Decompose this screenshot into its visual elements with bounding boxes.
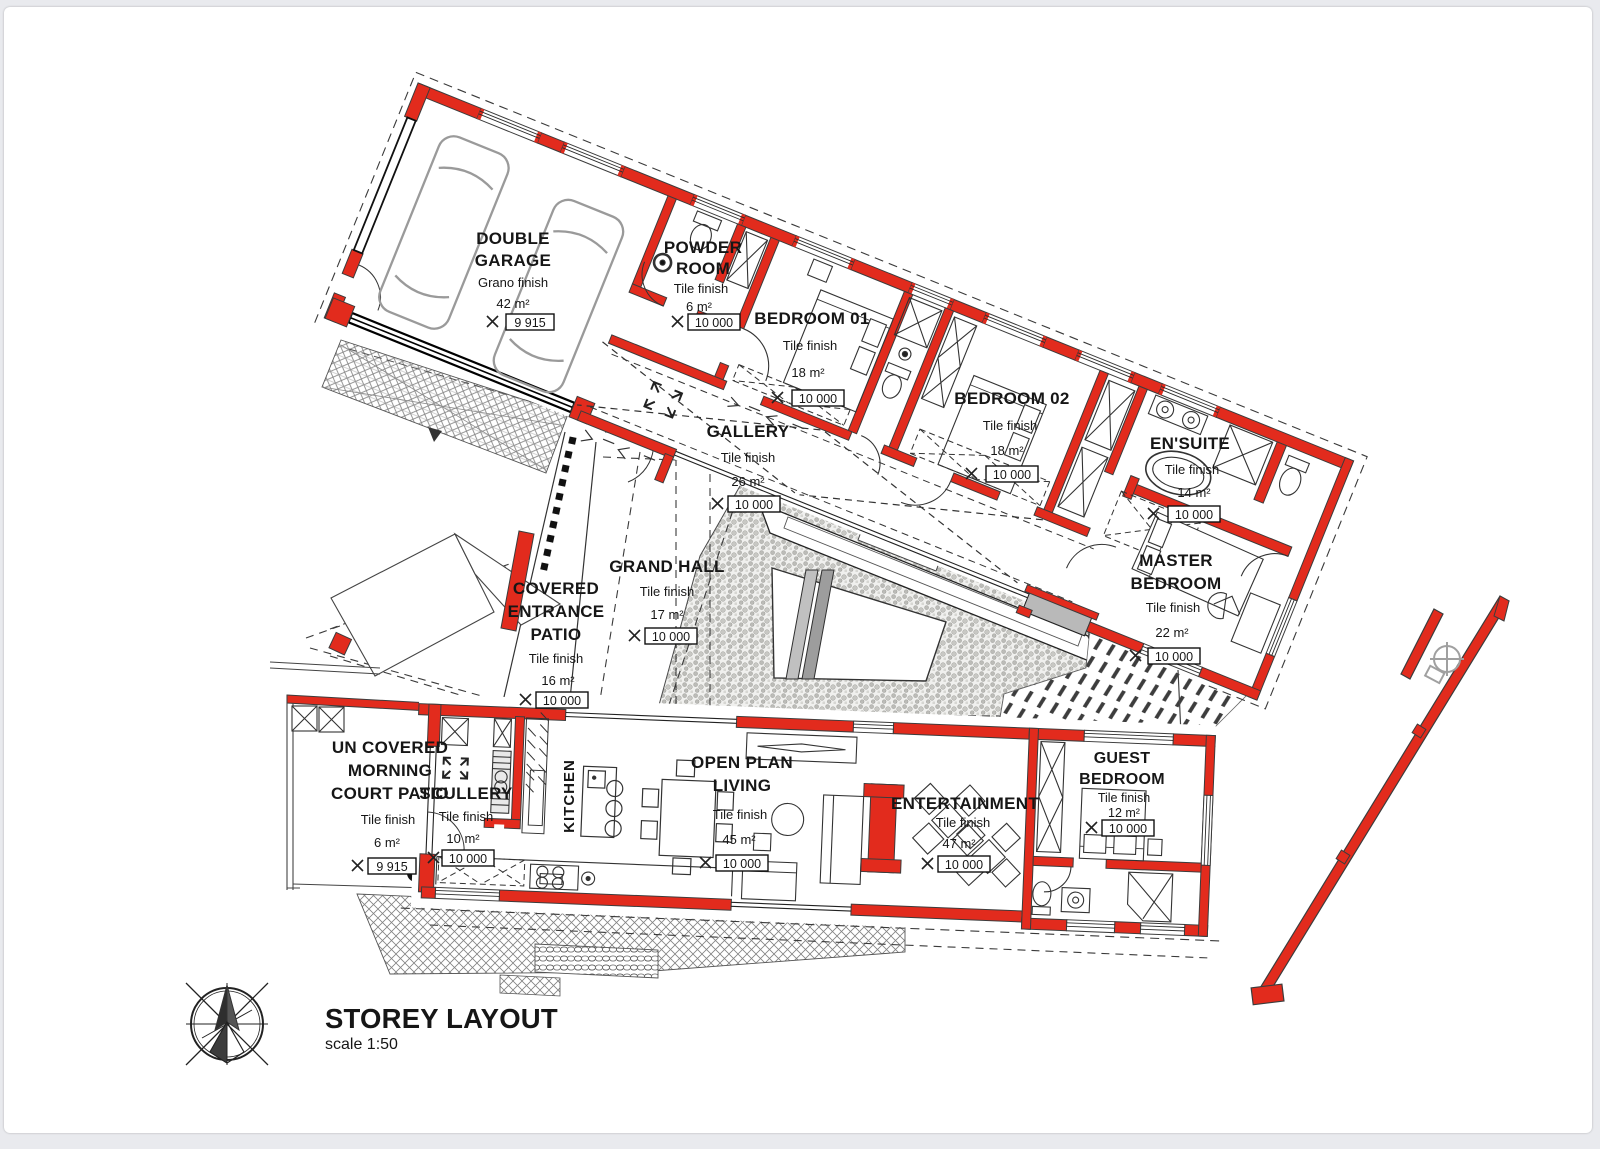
- svg-text:6 m²: 6 m²: [686, 299, 713, 314]
- svg-text:10 000: 10 000: [449, 852, 487, 866]
- svg-text:10 000: 10 000: [1109, 822, 1147, 836]
- svg-text:18 m²: 18 m²: [990, 443, 1024, 458]
- svg-text:47 m²: 47 m²: [942, 836, 976, 851]
- svg-text:18 m²: 18 m²: [791, 365, 825, 380]
- svg-text:BEDROOM 02: BEDROOM 02: [954, 389, 1069, 408]
- svg-text:Tile finish: Tile finish: [640, 584, 694, 599]
- svg-text:45 m²: 45 m²: [722, 832, 756, 847]
- svg-text:Tile finish: Tile finish: [361, 812, 415, 827]
- svg-text:EN'SUITE: EN'SUITE: [1150, 434, 1230, 453]
- svg-text:Tile finish: Tile finish: [1165, 462, 1219, 477]
- svg-text:10 000: 10 000: [993, 468, 1031, 482]
- svg-text:BEDROOM: BEDROOM: [1079, 771, 1165, 788]
- svg-text:GRAND HALL: GRAND HALL: [609, 557, 724, 576]
- svg-text:UN COVERED: UN COVERED: [332, 738, 448, 757]
- svg-text:COVERED: COVERED: [513, 579, 599, 598]
- svg-text:Tile finish: Tile finish: [983, 418, 1037, 433]
- svg-text:DOUBLE: DOUBLE: [476, 229, 550, 248]
- svg-text:16 m²: 16 m²: [541, 673, 575, 688]
- svg-text:BEDROOM 01: BEDROOM 01: [754, 309, 869, 328]
- svg-text:9 915: 9 915: [376, 860, 407, 874]
- svg-text:Tile finish: Tile finish: [1146, 600, 1200, 615]
- svg-text:Tile finish: Tile finish: [936, 815, 990, 830]
- svg-text:Tile finish: Tile finish: [783, 338, 837, 353]
- svg-text:12 m²: 12 m²: [1108, 806, 1140, 820]
- svg-text:17 m²: 17 m²: [650, 607, 684, 622]
- svg-text:6 m²: 6 m²: [374, 835, 401, 850]
- svg-text:POWDER: POWDER: [664, 238, 742, 257]
- svg-text:Tile finish: Tile finish: [1098, 791, 1150, 805]
- svg-text:10 000: 10 000: [723, 857, 761, 871]
- svg-text:14 m²: 14 m²: [1177, 485, 1211, 500]
- svg-text:ENTERTAINMENT: ENTERTAINMENT: [891, 794, 1039, 813]
- svg-text:SCULLERY: SCULLERY: [419, 784, 513, 803]
- svg-text:OPEN PLAN: OPEN PLAN: [691, 753, 793, 772]
- svg-text:10 000: 10 000: [735, 498, 773, 512]
- svg-text:Grano finish: Grano finish: [478, 275, 548, 290]
- svg-text:22 m²: 22 m²: [1155, 625, 1189, 640]
- svg-text:10 000: 10 000: [543, 694, 581, 708]
- svg-text:42 m²: 42 m²: [496, 296, 530, 311]
- svg-text:10 000: 10 000: [799, 392, 837, 406]
- svg-text:GUEST: GUEST: [1094, 750, 1151, 767]
- svg-text:PATIO: PATIO: [531, 625, 582, 644]
- svg-text:ROOM: ROOM: [676, 259, 730, 278]
- svg-text:GARAGE: GARAGE: [475, 251, 551, 270]
- svg-text:10 000: 10 000: [695, 316, 733, 330]
- svg-text:BEDROOM: BEDROOM: [1131, 574, 1222, 593]
- svg-text:9 915: 9 915: [514, 316, 545, 330]
- svg-text:26 m²: 26 m²: [731, 474, 765, 489]
- svg-text:10 000: 10 000: [652, 630, 690, 644]
- svg-text:10 000: 10 000: [1175, 508, 1213, 522]
- svg-text:Tile finish: Tile finish: [721, 450, 775, 465]
- svg-text:GALLERY: GALLERY: [707, 422, 790, 441]
- svg-text:KITCHEN: KITCHEN: [561, 759, 578, 833]
- svg-text:LIVING: LIVING: [713, 776, 771, 795]
- svg-text:MORNING: MORNING: [348, 761, 432, 780]
- svg-text:Tile finish: Tile finish: [713, 807, 767, 822]
- svg-text:scale 1:50: scale 1:50: [325, 1036, 398, 1053]
- svg-text:10 000: 10 000: [945, 858, 983, 872]
- svg-text:MASTER: MASTER: [1139, 551, 1213, 570]
- svg-text:Tile finish: Tile finish: [439, 809, 493, 824]
- svg-text:STOREY LAYOUT: STOREY LAYOUT: [325, 1003, 558, 1034]
- svg-text:Tile finish: Tile finish: [529, 651, 583, 666]
- svg-text:Tile finish: Tile finish: [674, 281, 728, 296]
- svg-text:ENTRANCE: ENTRANCE: [508, 602, 605, 621]
- svg-text:10 m²: 10 m²: [446, 831, 480, 846]
- svg-text:10 000: 10 000: [1155, 650, 1193, 664]
